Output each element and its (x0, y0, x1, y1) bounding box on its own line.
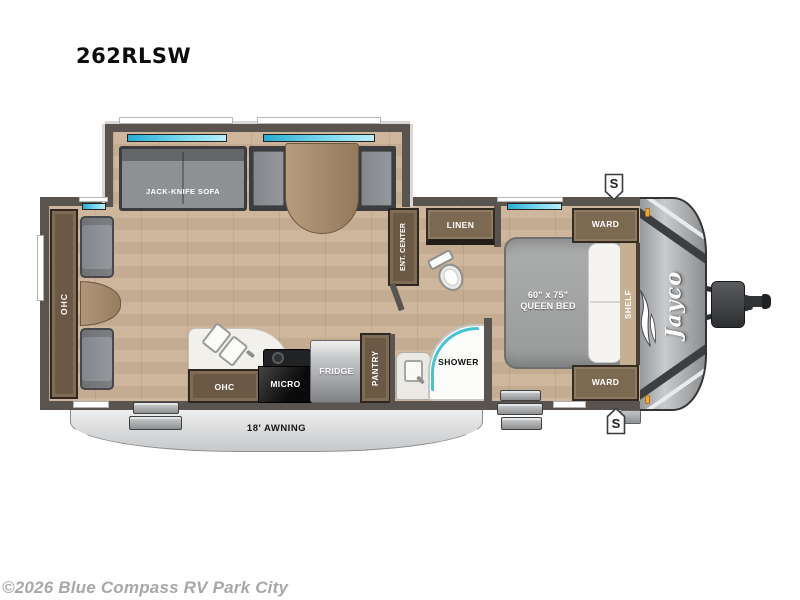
window-frame (257, 117, 381, 124)
shelf-label: SHELF (620, 265, 637, 343)
body-window (73, 401, 109, 408)
window-frame (119, 117, 233, 124)
copyright-watermark: ©2026 Blue Compass RV Park City (2, 578, 288, 598)
linen-label: LINEN (426, 220, 495, 230)
shower-label: SHOWER (428, 357, 489, 367)
svg-text:S: S (610, 176, 619, 191)
rear-ohc-label: OHC (50, 209, 78, 399)
brand-logo: Jayco (640, 197, 706, 411)
hitch-coupler (762, 294, 771, 309)
dinette-bench (253, 151, 284, 206)
slideout-window (263, 134, 375, 142)
model-title: 262RLSW (76, 44, 191, 68)
floorplan-page: 262RLSW (0, 0, 800, 600)
rear-window (37, 235, 44, 301)
bedroom-entry-step (501, 417, 542, 430)
speaker-marker-bottom: S (606, 407, 626, 435)
propane-tank (711, 281, 745, 328)
wardrobe-bottom-label: WARD (572, 377, 639, 387)
bedroom-window (507, 203, 562, 210)
window-frame (497, 197, 563, 202)
svg-text:S: S (612, 416, 621, 431)
theater-seat (80, 216, 114, 278)
brand-logo-text: Jayco (661, 270, 686, 338)
kitchen-ohc-label: OHC (188, 382, 261, 392)
body-window (553, 401, 586, 408)
speaker-marker-top: S (604, 173, 624, 201)
hawk-icon (637, 288, 661, 348)
slideout-window (127, 134, 227, 142)
bedroom-entry-step (500, 390, 541, 401)
window-frame (79, 197, 108, 202)
microwave-label: MICRO (258, 379, 313, 389)
stove-burner (272, 352, 284, 364)
fridge-label: FRIDGE (310, 366, 363, 376)
bedroom-entry-step (497, 403, 543, 415)
partition-wall (494, 206, 501, 247)
wardrobe-top-label: WARD (572, 219, 639, 229)
bed-type: QUEEN BED (500, 301, 596, 312)
sofa-seam (182, 152, 184, 204)
theater-seat (80, 328, 114, 390)
pantry-label: PANTRY (360, 333, 391, 403)
bed-size: 60" x 75" (500, 290, 596, 301)
hitch-tongue (744, 296, 763, 307)
ent-center-label: ENT. CENTER (388, 208, 419, 286)
awning-label: 18' AWNING (70, 423, 483, 434)
sofa-label: JACK-KNIFE SOFA (119, 187, 247, 196)
body-window (82, 203, 106, 210)
bed-label: 60" x 75" QUEEN BED (500, 290, 596, 312)
entry-step (133, 402, 179, 414)
dinette-bench (361, 151, 392, 206)
dinette-table (285, 143, 359, 234)
